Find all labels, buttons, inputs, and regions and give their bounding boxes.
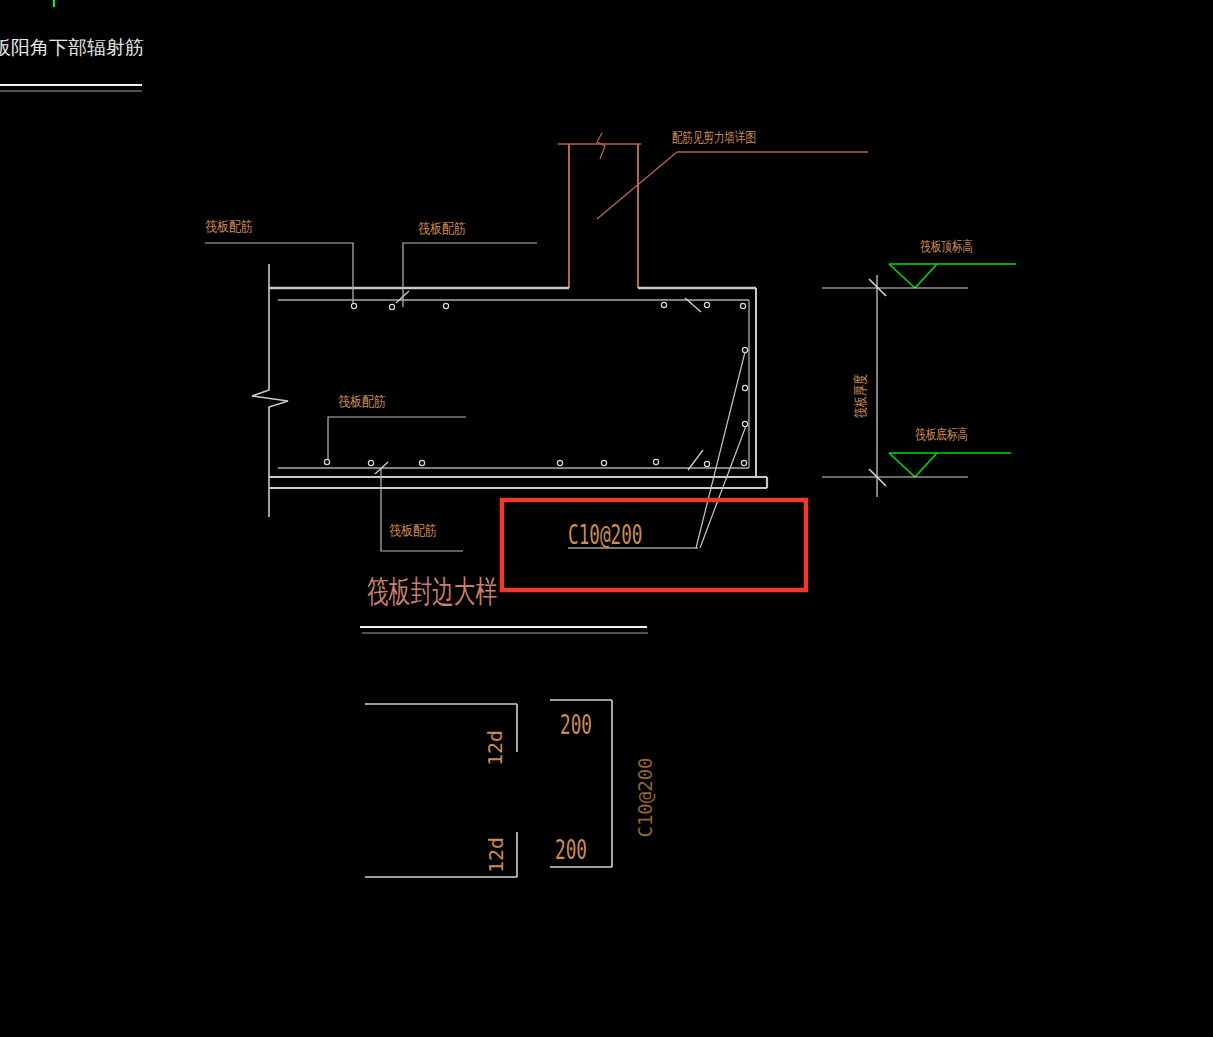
rebar-dots xyxy=(324,302,747,466)
slab-cut-break-line xyxy=(252,264,288,517)
wall-break-symbol xyxy=(597,133,605,159)
detail-title-underline xyxy=(360,627,648,633)
elevation-marker-bottom xyxy=(889,453,1011,477)
rebar-cut-ticks xyxy=(375,291,703,474)
bar-spec-vertical: C10@200 xyxy=(636,753,655,843)
wall-rebar-note: 配筋见剪力墙详图 xyxy=(672,130,756,144)
bottom-elevation-label: 筏板底标高 xyxy=(915,427,968,441)
detail-title: 筏板封边大样 xyxy=(367,576,497,607)
slab-section-outline xyxy=(252,264,756,517)
thickness-label: 筏板厚度 xyxy=(853,372,867,420)
hook-length-bottom: 12d xyxy=(486,830,506,880)
edge-bar-leader xyxy=(568,352,746,548)
edge-bar-spec: C10@200 xyxy=(568,522,643,548)
thickness-dimension xyxy=(822,275,968,497)
cushion-layer xyxy=(269,477,767,488)
spacing-bottom: 200 xyxy=(555,837,587,863)
corner-title: 筏板阳角下部辐射筋 xyxy=(0,38,144,57)
wall-section xyxy=(558,133,641,288)
raft-rebar-label-2: 筏板配筋 xyxy=(418,221,466,235)
corner-title-underline xyxy=(0,85,142,91)
raft-rebar-label-1: 筏板配筋 xyxy=(205,219,253,233)
spacing-top: 200 xyxy=(560,712,592,738)
elevation-marker-top xyxy=(889,264,1016,288)
top-elevation-label: 筏板顶标高 xyxy=(920,239,973,253)
raft-rebar-label-4: 筏板配筋 xyxy=(389,523,437,537)
raft-rebar-label-3: 筏板配筋 xyxy=(338,394,386,408)
cad-drawing-canvas: 筏板阳角下部辐射筋 配筋见剪力墙详图 筏板配筋 筏板配筋 筏板配筋 筏板配筋 C… xyxy=(0,0,1213,1037)
highlight-box xyxy=(502,500,806,590)
hook-length-top: 12d xyxy=(485,723,505,773)
drawing-linework xyxy=(0,0,1213,1037)
slab-rebar-lines xyxy=(278,300,749,468)
